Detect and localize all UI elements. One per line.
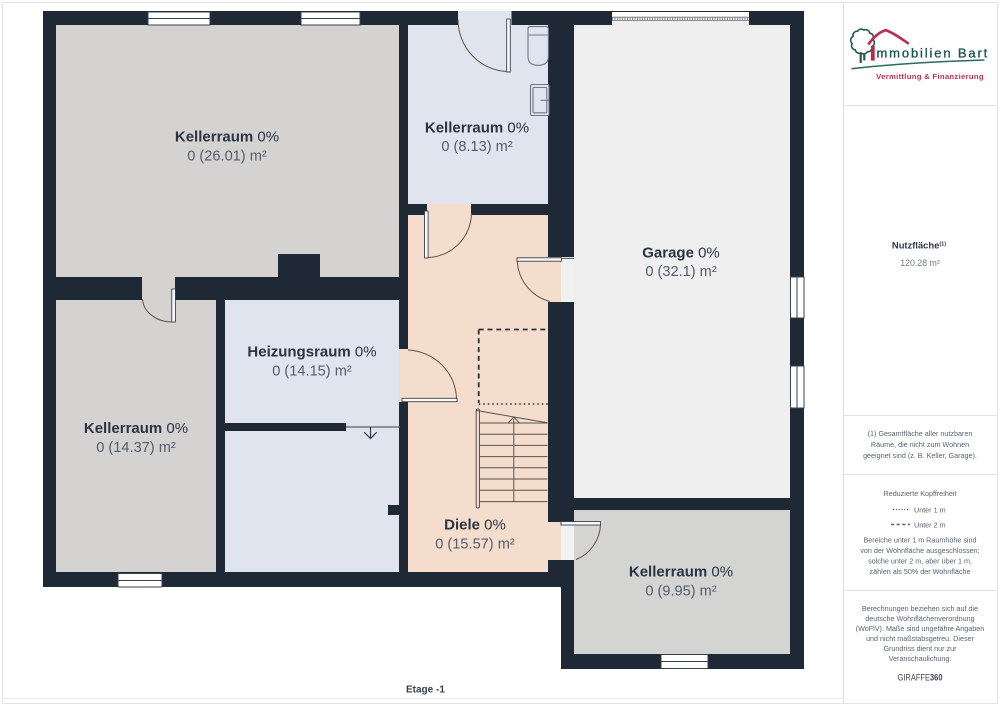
svg-text:Kellerraum 0%: Kellerraum 0% [425, 120, 529, 137]
svg-text:0 (8.13) m²: 0 (8.13) m² [441, 139, 513, 155]
svg-text:Berechnungen beziehen sich auf: Berechnungen beziehen sich auf die [862, 604, 978, 613]
svg-text:geeignet sind (z. B. Keller, G: geeignet sind (z. B. Keller, Garage). [863, 451, 977, 460]
svg-text:deutsche Wohnflächenverordnung: deutsche Wohnflächenverordnung [865, 614, 974, 623]
svg-text:(1) Gesamtfläche aller nutzbar: (1) Gesamtfläche aller nutzbaren [868, 429, 973, 438]
svg-text:Kellerraum 0%: Kellerraum 0% [84, 420, 188, 437]
svg-text:Veranschaulichung.: Veranschaulichung. [889, 654, 952, 663]
svg-text:zählen als 50% der Wohnfläche: zählen als 50% der Wohnfläche [870, 567, 971, 576]
svg-text:Reduzierte Kopffreiheit: Reduzierte Kopffreiheit [884, 489, 957, 498]
svg-text:Kellerraum 0%: Kellerraum 0% [629, 564, 733, 581]
svg-text:Diele 0%: Diele 0% [444, 517, 506, 534]
svg-text:von der Wohnfläche ausgeschlos: von der Wohnfläche ausgeschlossen; [860, 546, 979, 555]
svg-text:0 (14.15) m²: 0 (14.15) m² [272, 364, 352, 380]
svg-text:0 (26.01) m²: 0 (26.01) m² [187, 149, 267, 165]
svg-text:GIRAFFE360: GIRAFFE360 [898, 673, 943, 683]
svg-text:Kellerraum 0%: Kellerraum 0% [175, 129, 279, 146]
svg-text:Unter 1 m: Unter 1 m [914, 506, 946, 515]
svg-text:(WoFlV). Maße sind ungefähre A: (WoFlV). Maße sind ungefähre Angaben [856, 624, 985, 633]
svg-text:Unter 2 m: Unter 2 m [914, 521, 946, 530]
svg-text:Vermittlung & Finanzierung: Vermittlung & Finanzierung [876, 72, 984, 81]
svg-text:Bereiche unter 1 m Raumhöhe si: Bereiche unter 1 m Raumhöhe sind [863, 536, 976, 545]
svg-text:0 (32.1) m²: 0 (32.1) m² [645, 264, 717, 280]
svg-text:0 (15.57) m²: 0 (15.57) m² [435, 537, 515, 553]
svg-text:mmobilien Bart: mmobilien Bart [877, 46, 990, 61]
svg-text:0 (9.95) m²: 0 (9.95) m² [645, 584, 717, 600]
svg-text:Garage 0%: Garage 0% [642, 245, 720, 262]
svg-text:Räume, die nicht zum Wohnen: Räume, die nicht zum Wohnen [871, 440, 969, 449]
svg-text:und nicht maßstabsgetreu. Dies: und nicht maßstabsgetreu. Dieser [866, 634, 974, 643]
svg-text:Etage -1: Etage -1 [406, 685, 445, 696]
svg-text:solche unter 2 m, aber über 1: solche unter 2 m, aber über 1 m, [868, 557, 972, 566]
svg-text:0 (14.37) m²: 0 (14.37) m² [96, 440, 176, 456]
svg-text:Grundriss dient nur zur: Grundriss dient nur zur [883, 644, 957, 653]
svg-text:Nutzfläche(1): Nutzfläche(1) [892, 240, 946, 251]
svg-text:Heizungsraum 0%: Heizungsraum 0% [247, 344, 376, 361]
svg-text:120.28 m²: 120.28 m² [900, 258, 940, 268]
